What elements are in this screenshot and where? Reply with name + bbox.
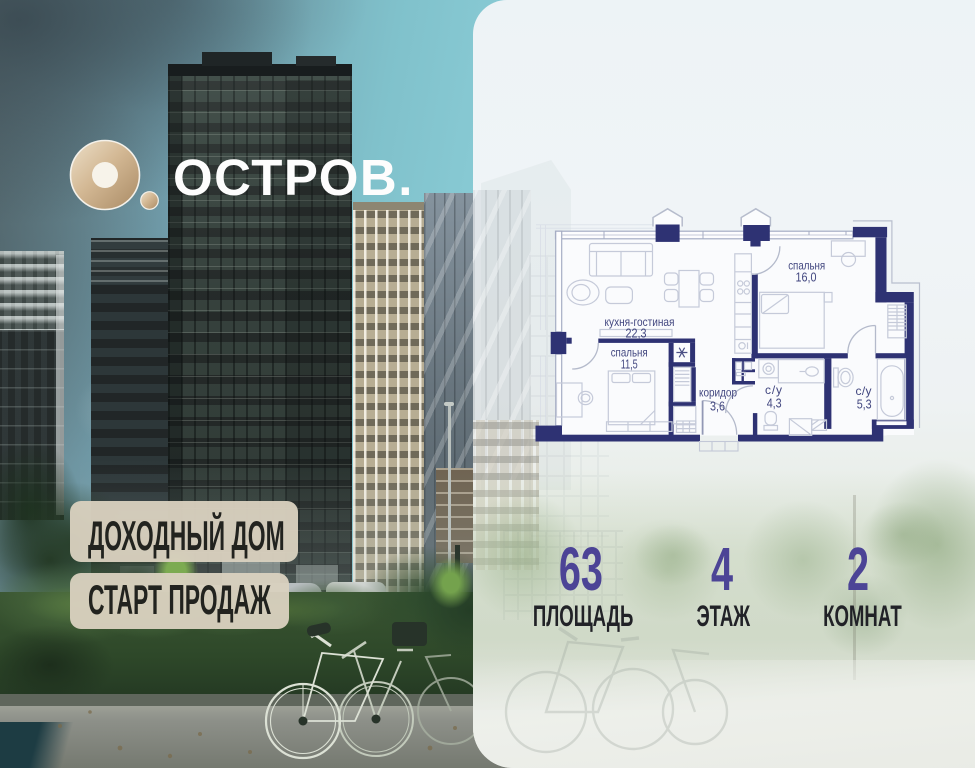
svg-text:11,5: 11,5 xyxy=(621,357,638,371)
svg-text:4,3: 4,3 xyxy=(767,397,782,411)
svg-text:5,3: 5,3 xyxy=(857,398,872,412)
svg-text:22,3: 22,3 xyxy=(626,327,647,341)
svg-text:коридор: коридор xyxy=(699,385,737,399)
svg-text:с/у: с/у xyxy=(765,383,782,397)
svg-text:с/у: с/у xyxy=(856,384,872,398)
svg-text:3,6: 3,6 xyxy=(710,400,725,414)
svg-text:16,0: 16,0 xyxy=(796,271,817,285)
